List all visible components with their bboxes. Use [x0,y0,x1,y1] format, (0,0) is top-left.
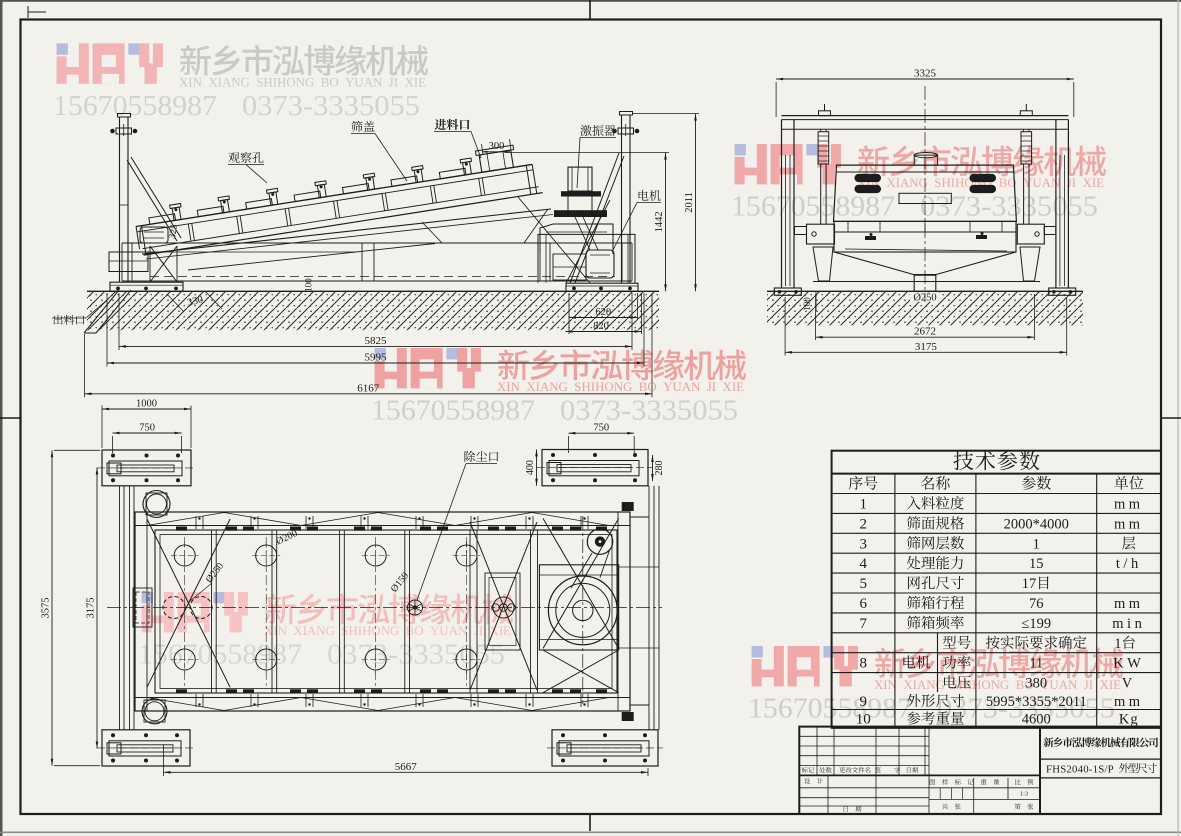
svg-text:2: 2 [859,516,867,532]
svg-text:100: 100 [802,297,812,311]
svg-text:7: 7 [859,616,867,632]
svg-text:11: 11 [1029,656,1043,672]
svg-text:V: V [1122,676,1136,692]
svg-text:t/h: t/h [1116,556,1142,572]
svg-text:4: 4 [859,556,867,572]
svg-text:mm: mm [1114,516,1144,532]
svg-text:1: 1 [1114,636,1121,652]
svg-text:Kg: Kg [1119,712,1139,728]
svg-text:mm: mm [1114,496,1144,512]
svg-text:3575: 3575 [41,598,52,619]
svg-text:9: 9 [859,694,867,710]
svg-text:15670558987: 15670558987 [371,396,535,427]
svg-text:2000*4000: 2000*4000 [1004,516,1069,532]
svg-text:100: 100 [304,278,314,292]
svg-text:4600: 4600 [1022,712,1051,728]
svg-text:3175: 3175 [915,341,938,353]
svg-text:KW: KW [1113,656,1144,672]
svg-text:XIN XIANG SHIHONG BO YUAN: XIN XIANG SHIHONG BO YUAN JI XIE [264,624,511,638]
svg-text:76: 76 [1029,596,1044,612]
svg-text:3: 3 [859,536,867,552]
svg-text:5825: 5825 [365,335,388,347]
svg-text:3175: 3175 [86,598,97,619]
svg-text:300: 300 [489,141,505,152]
svg-text:3325: 3325 [914,68,937,80]
svg-text:0373-3335055: 0373-3335055 [560,396,738,427]
svg-text:280: 280 [654,461,665,476]
svg-text:2011: 2011 [684,192,695,213]
svg-text:1000: 1000 [136,399,157,410]
svg-text:FHS2040-1S/P: FHS2040-1S/P [1046,763,1114,775]
svg-text:400: 400 [525,460,536,475]
svg-text:15670558987: 15670558987 [731,192,895,223]
svg-text:XIN XIANG SHIHONG BO YUAN: XIN XIANG SHIHONG BO YUAN JI XIE [874,678,1121,692]
svg-text:6167: 6167 [357,382,380,394]
svg-text:5667: 5667 [395,761,418,773]
svg-text:750: 750 [593,423,609,434]
svg-text:15: 15 [1029,556,1044,572]
svg-text:820: 820 [593,321,609,332]
svg-text:620: 620 [595,307,611,318]
svg-text:15670558987: 15670558987 [53,91,217,122]
svg-text:5: 5 [859,576,867,592]
svg-text:0373-3335055: 0373-3335055 [327,640,505,671]
svg-text:XIN XIANG SHIHONG BO YUAN: XIN XIANG SHIHONG BO YUAN JI XIE [179,75,426,89]
svg-text:6: 6 [859,596,867,612]
svg-text:1442: 1442 [654,211,665,232]
svg-text:5995*3355*2011: 5995*3355*2011 [986,694,1087,710]
svg-text:≤199: ≤199 [1021,616,1051,632]
svg-text:8: 8 [859,656,867,672]
svg-text:XIN XIANG SHIHONG BO YUAN: XIN XIANG SHIHONG BO YUAN JI XIE [497,380,744,394]
svg-text:0373-3335055: 0373-3335055 [920,192,1098,223]
svg-text:17: 17 [1022,576,1037,592]
svg-text:1: 1 [1033,536,1040,552]
svg-text:10: 10 [856,712,871,728]
svg-text:mm: mm [1114,596,1144,612]
svg-text:0373-3335055: 0373-3335055 [242,91,420,122]
svg-text:min: min [1112,616,1145,632]
svg-text:380: 380 [1025,676,1047,692]
svg-text:5995: 5995 [365,352,388,364]
svg-text:mm: mm [1114,694,1144,710]
svg-text:750: 750 [139,423,155,434]
svg-text:1:3: 1:3 [1020,790,1028,797]
svg-text:2672: 2672 [914,326,936,338]
svg-text:1: 1 [859,496,867,512]
